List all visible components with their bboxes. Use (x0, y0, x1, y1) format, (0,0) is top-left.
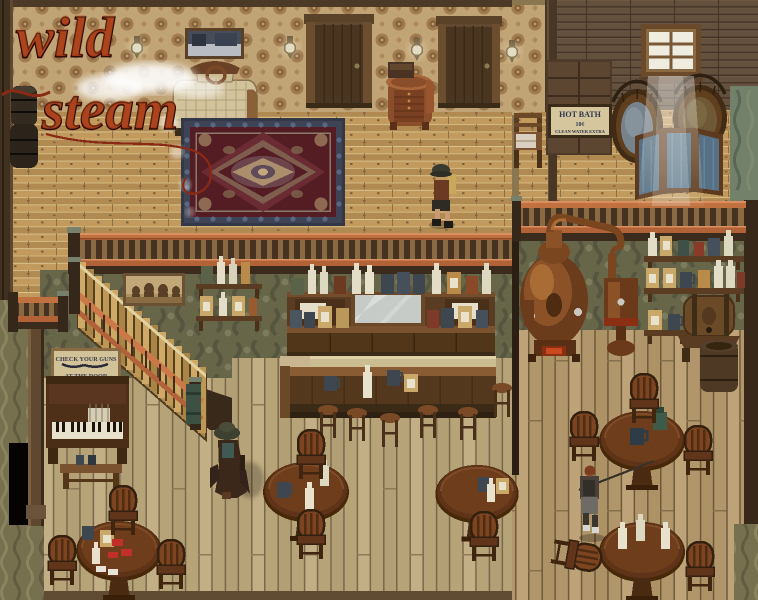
svg-text:HOT BATH: HOT BATH (559, 110, 601, 119)
svg-text:wild: wild (16, 5, 116, 68)
svg-text:CHECK YOUR GUNS: CHECK YOUR GUNS (56, 356, 118, 363)
svg-text:steam: steam (41, 77, 178, 140)
svg-text:10¢: 10¢ (576, 122, 585, 128)
svg-text:CLEAN WATER EXTRA: CLEAN WATER EXTRA (555, 129, 606, 134)
